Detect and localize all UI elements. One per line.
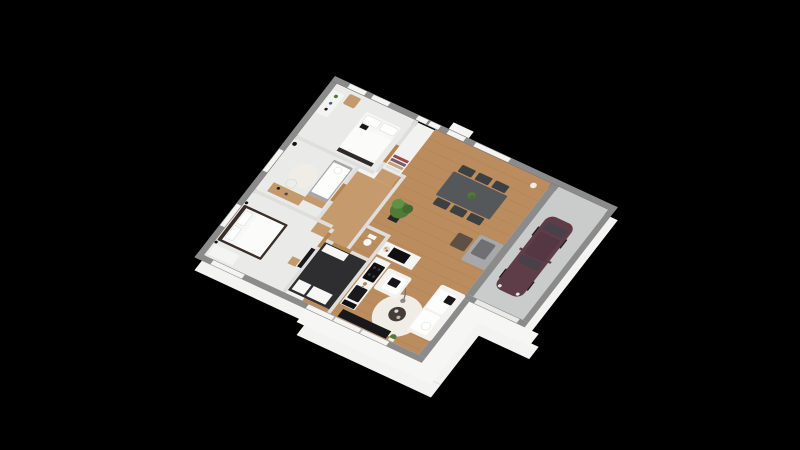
floor-plan-render — [0, 0, 800, 450]
floor-plan-stage — [0, 0, 800, 450]
